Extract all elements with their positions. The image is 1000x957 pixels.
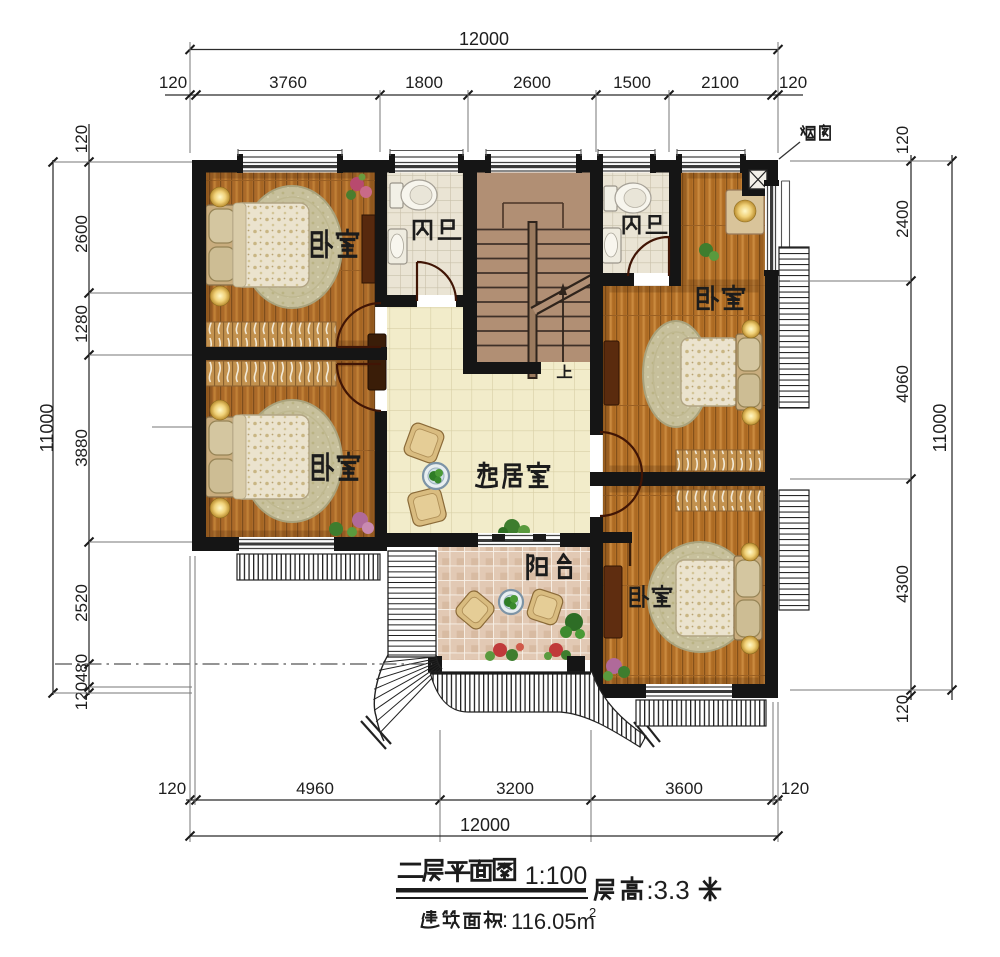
svg-text:11000: 11000 [930, 404, 950, 453]
svg-text:3600: 3600 [665, 779, 703, 798]
svg-text:3200: 3200 [496, 779, 534, 798]
svg-text:2400: 2400 [893, 200, 912, 238]
svg-text:120: 120 [158, 779, 186, 798]
svg-text::: : [502, 909, 508, 932]
svg-text:11000: 11000 [37, 404, 57, 453]
svg-text:12000: 12000 [460, 815, 510, 835]
svg-text:120: 120 [72, 682, 91, 710]
svg-text:2: 2 [589, 905, 596, 920]
svg-text::3.3: :3.3 [646, 875, 689, 905]
svg-text:12000: 12000 [459, 29, 509, 49]
svg-text:1500: 1500 [613, 73, 651, 92]
svg-text:4960: 4960 [296, 779, 334, 798]
svg-text:2100: 2100 [701, 73, 739, 92]
svg-text:120: 120 [72, 125, 91, 153]
svg-text:4060: 4060 [893, 365, 912, 403]
svg-text:1800: 1800 [405, 73, 443, 92]
svg-text:120: 120 [781, 779, 809, 798]
svg-text:120: 120 [779, 73, 807, 92]
svg-text:116.05m: 116.05m [511, 909, 595, 934]
svg-text:120: 120 [893, 126, 912, 154]
svg-text:2520: 2520 [72, 584, 91, 622]
svg-text:4300: 4300 [893, 565, 912, 603]
svg-text:120: 120 [893, 695, 912, 723]
svg-text:3880: 3880 [72, 429, 91, 467]
svg-text:2600: 2600 [72, 215, 91, 253]
svg-text:1:100: 1:100 [525, 862, 588, 890]
svg-text:1280: 1280 [72, 305, 91, 343]
svg-text:3760: 3760 [269, 73, 307, 92]
svg-text:480: 480 [72, 654, 91, 682]
svg-text:120: 120 [159, 73, 187, 92]
svg-text:2600: 2600 [513, 73, 551, 92]
